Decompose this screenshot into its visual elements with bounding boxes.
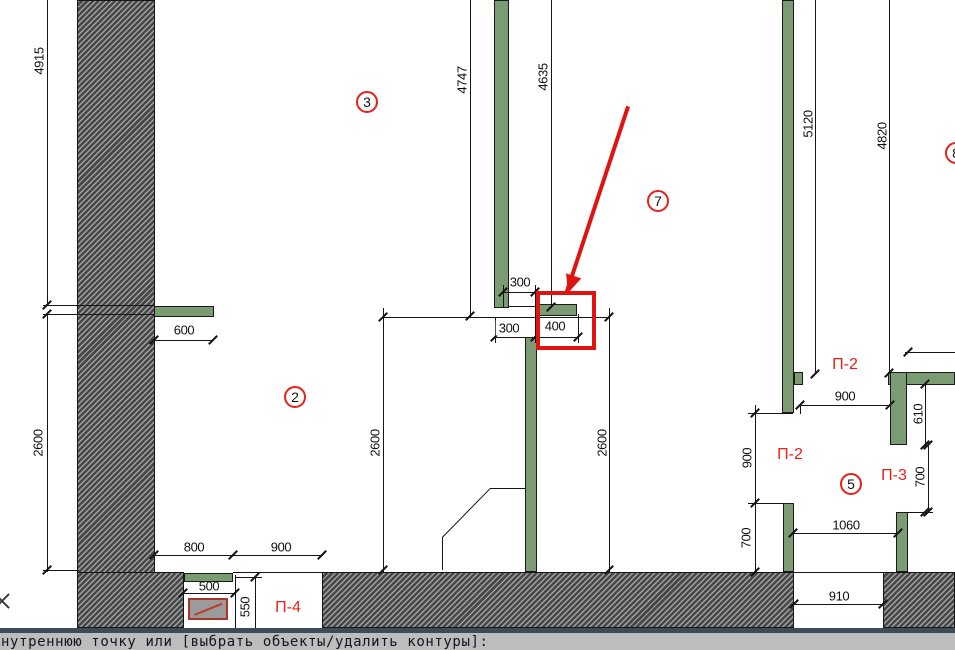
dim-label-900-left: 900 xyxy=(740,448,755,469)
dim-label-700-left: 700 xyxy=(739,528,754,549)
partition-center-upper xyxy=(494,0,509,308)
room-number-5-text: 5 xyxy=(847,476,855,492)
room-number-7-text: 7 xyxy=(654,193,662,209)
door-head-line xyxy=(490,488,525,489)
dim-label-1060: 1060 xyxy=(832,518,859,533)
ext-line xyxy=(43,305,155,306)
dim-label-4820: 4820 xyxy=(875,122,890,149)
dim-line-4635 xyxy=(551,0,552,307)
opening-edge-line xyxy=(794,572,883,573)
annotation-highlight-rect xyxy=(536,291,596,350)
dim-label-900-top: 900 xyxy=(835,389,856,404)
partition-right-upper xyxy=(782,0,794,413)
door-swing-line xyxy=(442,488,491,538)
ext-line xyxy=(43,570,79,571)
wall-left-vertical xyxy=(77,0,155,573)
dim-line-910 xyxy=(794,604,883,605)
partition-center-lower xyxy=(525,337,537,572)
command-line-bar[interactable]: нутреннюю точку или [выбрать объекты/уда… xyxy=(0,628,955,650)
room-number-2: 2 xyxy=(284,386,306,408)
panel-label-p3: П-3 xyxy=(881,467,907,485)
dim-line-1060 xyxy=(793,533,898,534)
dim-line-4820 xyxy=(889,0,890,373)
dim-line-800-900 xyxy=(154,555,322,556)
dim-line-5120 xyxy=(815,0,816,374)
dim-label-600: 600 xyxy=(174,323,195,338)
dim-label-4747: 4747 xyxy=(455,66,470,93)
dim-line-4915 xyxy=(47,0,48,305)
panel-label-p2-top: П-2 xyxy=(832,356,858,374)
annotation-arrow-line xyxy=(565,106,630,293)
room-number-2-text: 2 xyxy=(291,389,299,405)
dim-label-550: 550 xyxy=(238,597,253,618)
wall-bottom-right xyxy=(883,572,955,628)
dim-label-2600-room7: 2600 xyxy=(595,429,610,456)
ext-line xyxy=(43,314,154,315)
window-niche-edge xyxy=(235,575,236,628)
dim-label-2600-room2: 2600 xyxy=(368,429,383,456)
dim-line-300-top xyxy=(503,292,535,293)
dim-label-900-bottom: 900 xyxy=(271,540,292,555)
wall-bottom-left xyxy=(77,572,184,628)
dim-label-4635: 4635 xyxy=(536,63,551,90)
room-number-8: 8 xyxy=(945,142,955,164)
dim-label-300-top: 300 xyxy=(510,275,531,290)
door-jamb-line xyxy=(442,537,443,570)
dim-line-4747 xyxy=(470,0,471,317)
panel-label-p2-left: П-2 xyxy=(777,446,803,464)
room-number-3-text: 3 xyxy=(363,94,371,110)
dim-line-550 xyxy=(255,577,256,628)
opening-edge-line xyxy=(233,572,322,573)
command-prompt-text: нутреннюю точку или [выбрать объекты/уда… xyxy=(1,634,489,650)
dim-label-800: 800 xyxy=(184,540,205,555)
dim-label-4915: 4915 xyxy=(32,47,47,74)
dim-label-700-right: 700 xyxy=(913,467,928,488)
dim-label-910: 910 xyxy=(829,589,850,604)
ext-line xyxy=(235,577,262,578)
partition-right-stub xyxy=(794,372,803,385)
dim-label-2600-left: 2600 xyxy=(31,429,46,456)
dim-line-900-700-right xyxy=(755,405,756,572)
dim-line-700-far-right xyxy=(928,445,929,512)
dim-label-300: 300 xyxy=(496,321,523,336)
room-number-7: 7 xyxy=(647,190,669,212)
partition-far-right-upper xyxy=(890,372,907,445)
room-number-5: 5 xyxy=(840,473,862,495)
wall-bottom-middle xyxy=(322,572,794,628)
panel-label-p4: П-4 xyxy=(275,599,301,617)
dim-line-right-edge xyxy=(905,352,955,353)
dim-line-2600-room2 xyxy=(383,308,384,572)
partition-left-stub xyxy=(154,306,214,317)
partition-far-right-lower xyxy=(896,512,908,572)
dim-label-610: 610 xyxy=(911,404,926,425)
dim-label-5120: 5120 xyxy=(801,110,816,137)
wall-step-line xyxy=(509,306,535,307)
dim-line-900-top-right xyxy=(800,405,890,406)
cad-drawing-canvas[interactable]: 4915 2600 4747 4635 5120 4820 2600 2600 … xyxy=(0,0,955,650)
ext-line xyxy=(800,405,801,414)
dim-line-2600-left xyxy=(47,313,48,572)
room-number-3: 3 xyxy=(356,91,378,113)
dim-label-500: 500 xyxy=(199,579,220,594)
dim-line-600 xyxy=(154,340,213,341)
